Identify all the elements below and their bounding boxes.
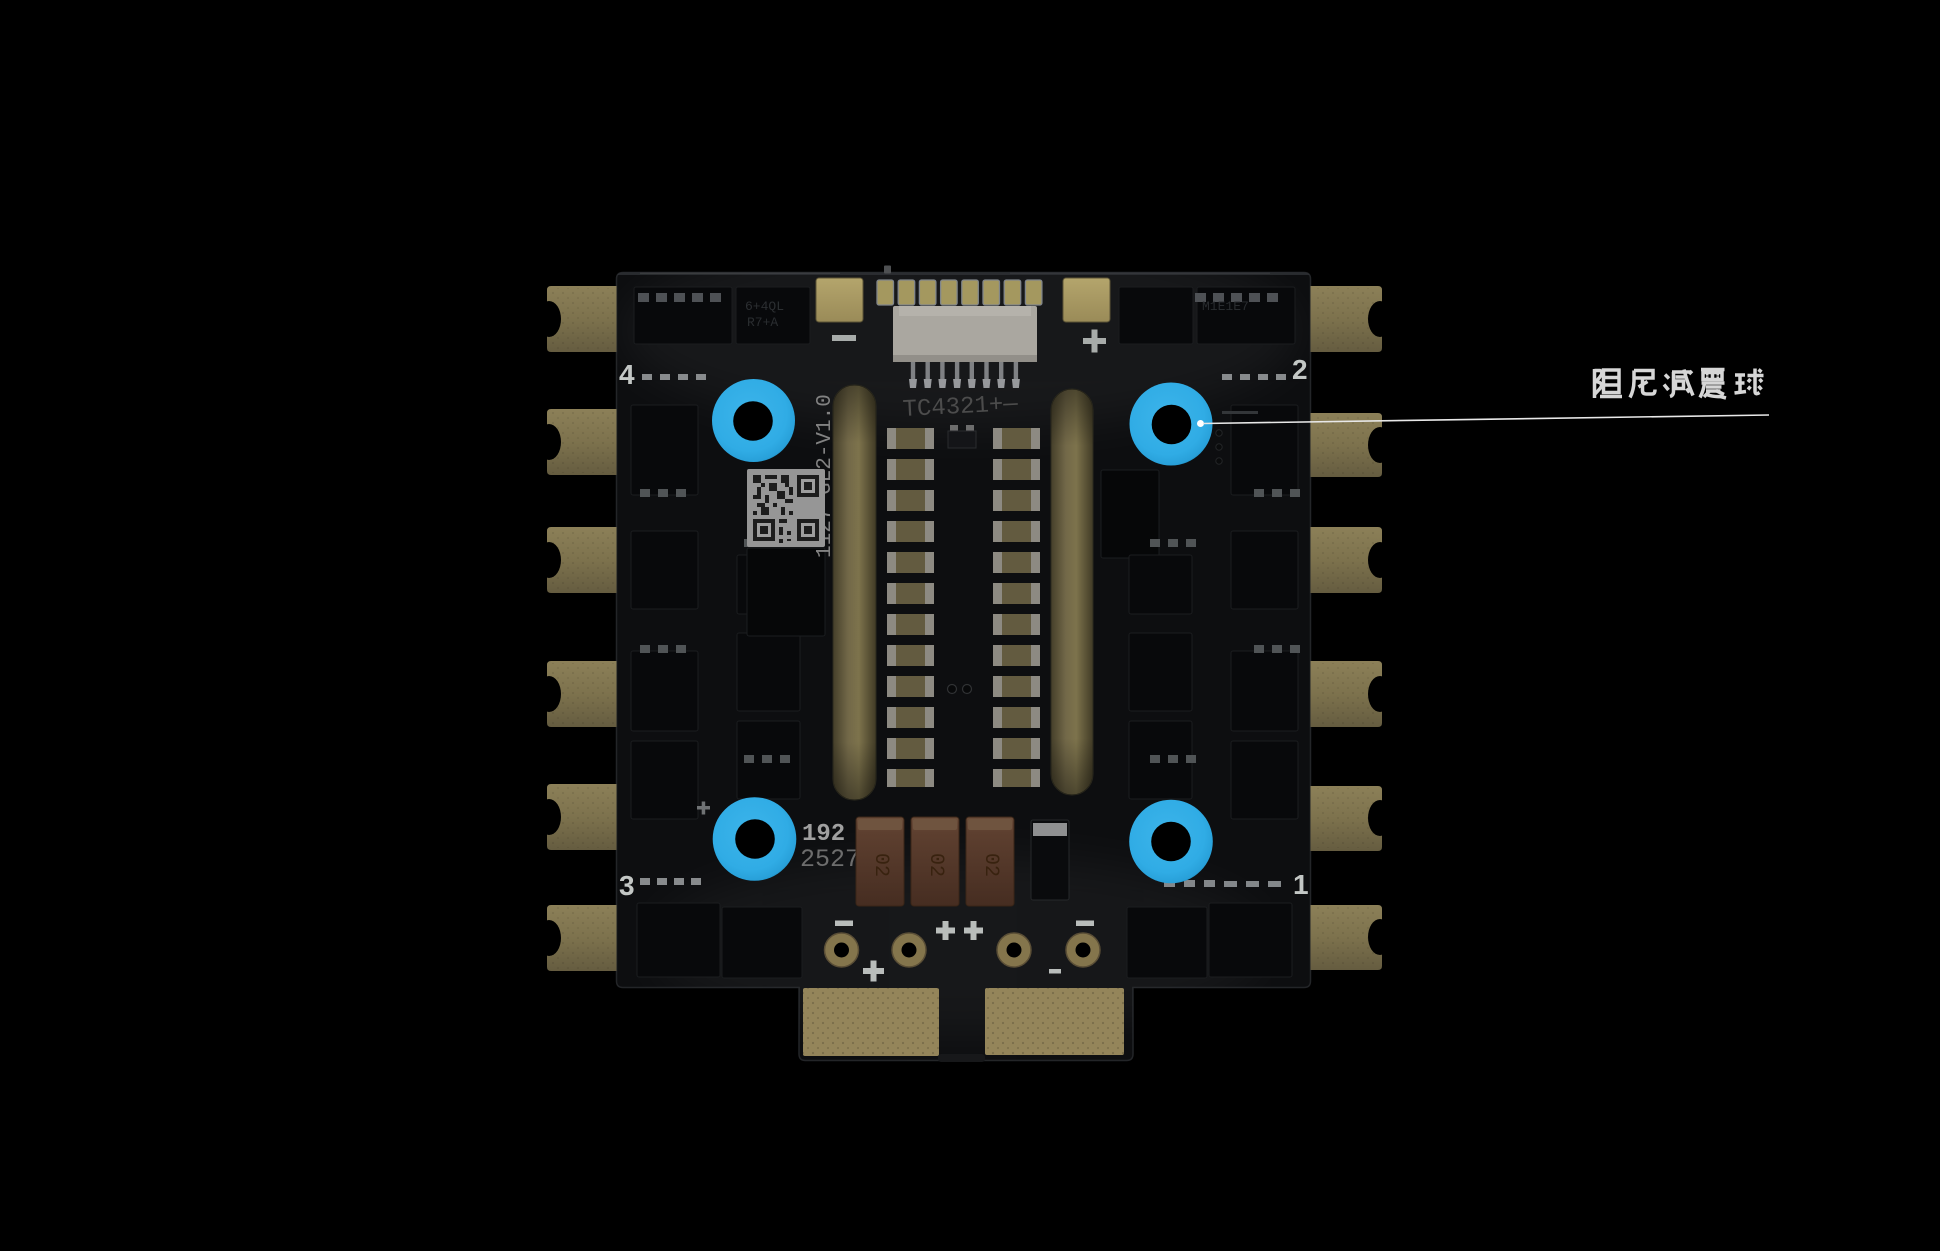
svg-text:2: 2: [1292, 354, 1308, 385]
svg-text:02: 02: [924, 853, 947, 877]
svg-text:02: 02: [869, 853, 892, 877]
svg-text:02: 02: [979, 853, 1002, 877]
svg-text:4: 4: [619, 359, 635, 390]
svg-text:M1E1E7: M1E1E7: [1202, 299, 1249, 314]
svg-text:R7+A: R7+A: [747, 315, 778, 330]
svg-text:1: 1: [1293, 869, 1309, 900]
svg-text:2527: 2527: [800, 845, 860, 874]
svg-text:192: 192: [802, 821, 845, 848]
svg-text:3: 3: [619, 870, 635, 901]
svg-text:6+4QL: 6+4QL: [745, 299, 784, 314]
